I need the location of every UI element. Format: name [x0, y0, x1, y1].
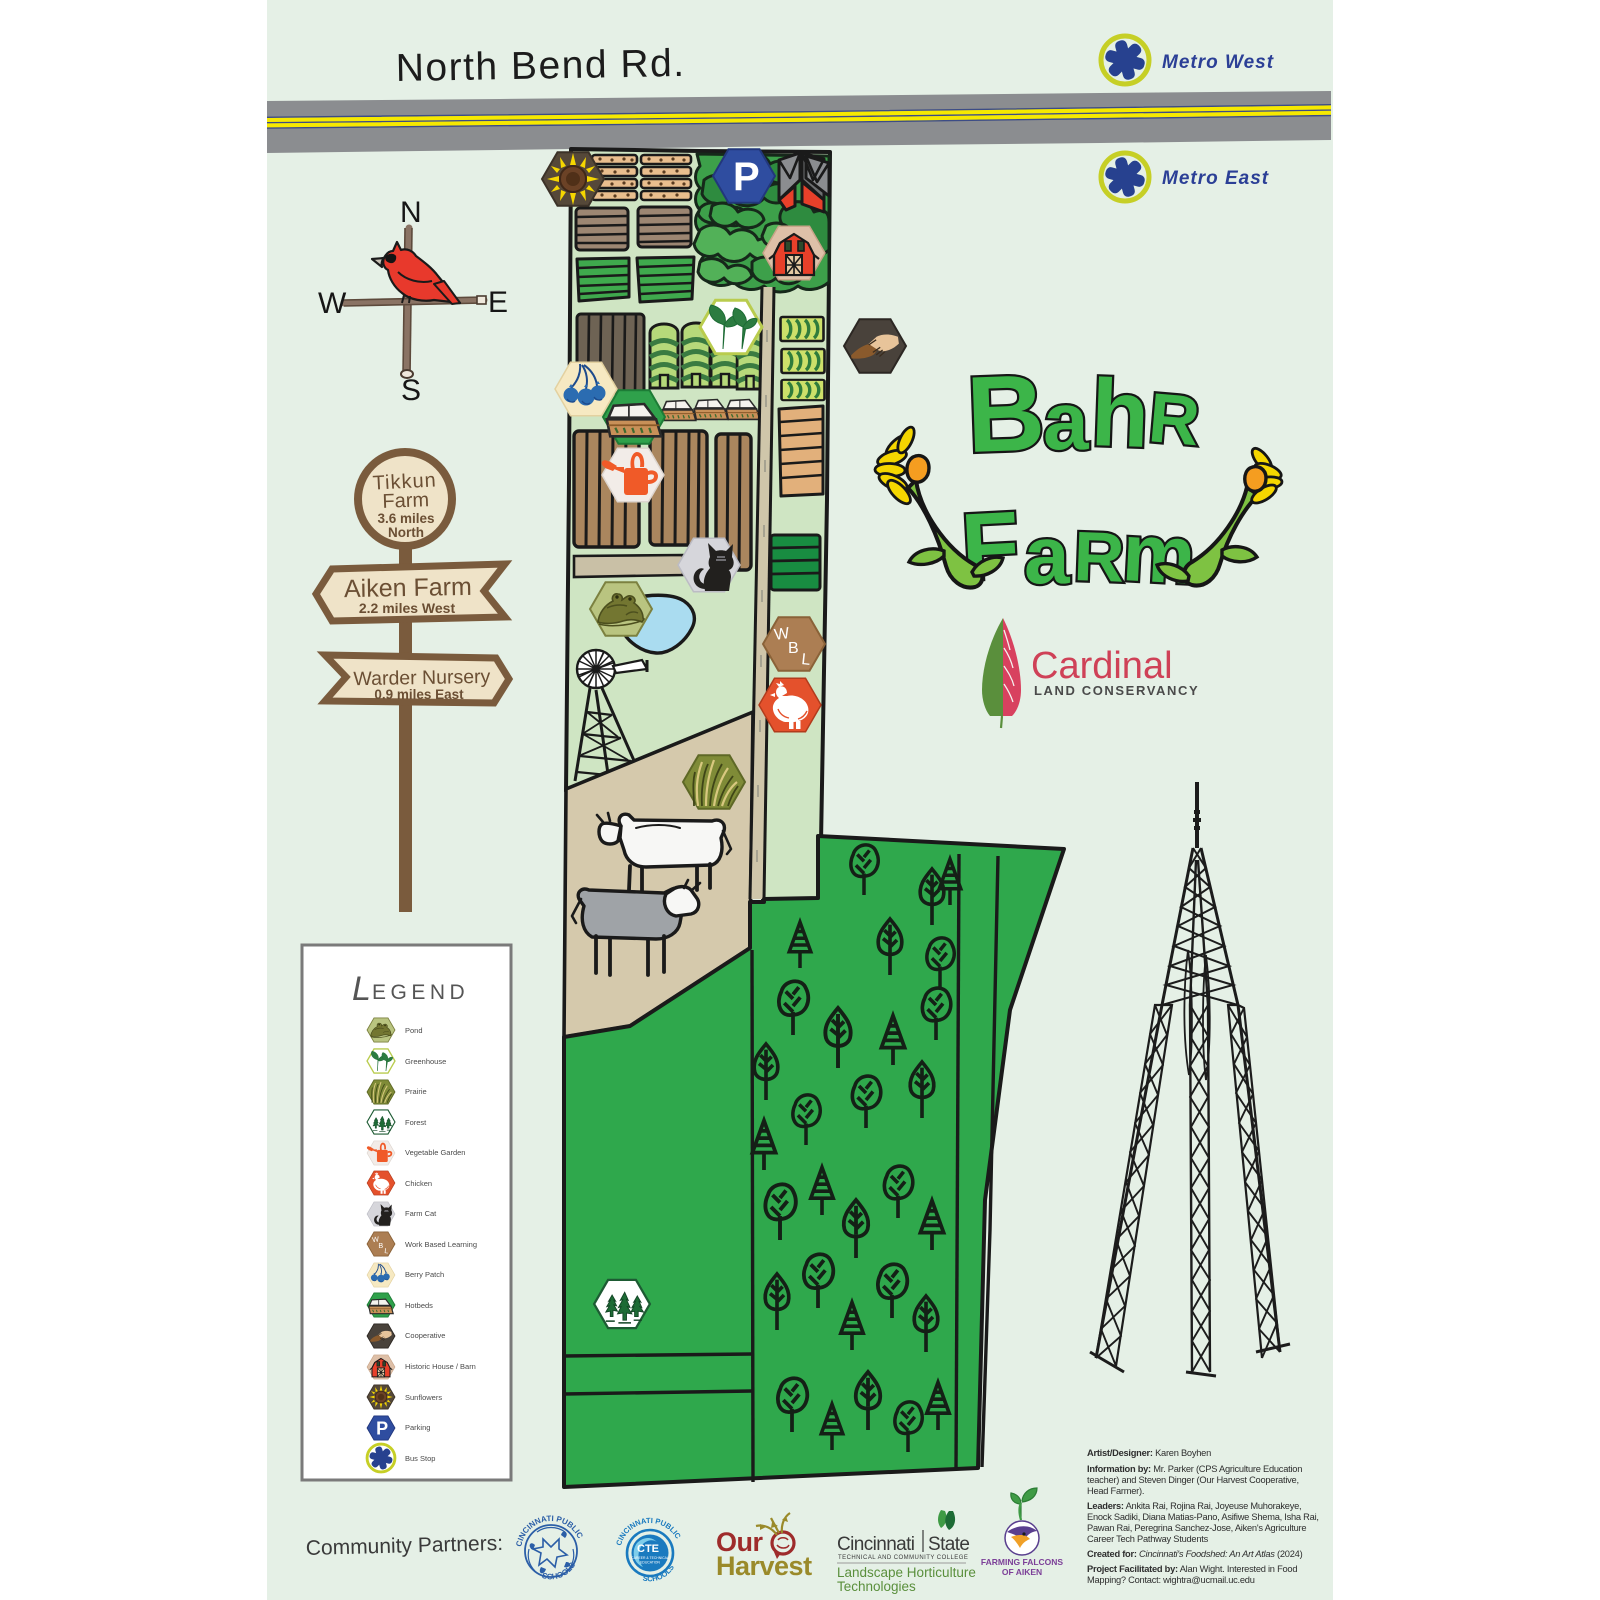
svg-text:EDUCATION: EDUCATION [640, 1561, 660, 1565]
svg-text:Chicken: Chicken [405, 1179, 432, 1188]
svg-text:FARMING FALCONS: FARMING FALCONS [981, 1557, 1063, 1567]
svg-text:Cooperative: Cooperative [405, 1331, 445, 1340]
svg-text:Hotbeds: Hotbeds [405, 1301, 433, 1310]
svg-text:CAREER & TECHNICAL: CAREER & TECHNICAL [631, 1556, 669, 1560]
svg-text:Metro West: Metro West [1162, 52, 1274, 73]
svg-text:North: North [388, 525, 424, 540]
svg-text:Cincinnati: Cincinnati [837, 1534, 914, 1555]
svg-text:Berry Patch: Berry Patch [405, 1270, 444, 1279]
svg-text:Forest: Forest [405, 1118, 427, 1127]
svg-text:Cardinal: Cardinal [1031, 645, 1173, 687]
svg-text:2.2 miles West: 2.2 miles West [359, 600, 456, 616]
svg-text:Greenhouse: Greenhouse [405, 1057, 446, 1066]
svg-text:Farm Cat: Farm Cat [405, 1209, 437, 1218]
svg-text:Information by: Mr. Parker (CP: Information by: Mr. Parker (CPS Agricult… [1087, 1464, 1302, 1474]
svg-text:0.9 miles East: 0.9 miles East [374, 687, 464, 702]
svg-text:teacher) and Steven Dinger (Ou: teacher) and Steven Dinger (Our Harvest … [1087, 1475, 1299, 1485]
svg-text:Prairie: Prairie [405, 1087, 427, 1096]
svg-text:EGEND: EGEND [372, 981, 469, 1004]
svg-text:E: E [488, 286, 508, 319]
svg-text:Leaders: Ankita Rai, Rojina Ra: Leaders: Ankita Rai, Rojina Rai, Joyeuse… [1087, 1501, 1301, 1511]
svg-text:L: L [352, 970, 371, 1008]
svg-text:LAND CONSERVANCY: LAND CONSERVANCY [1034, 683, 1199, 698]
svg-text:R: R [1072, 517, 1125, 597]
svg-text:Harvest: Harvest [716, 1551, 812, 1581]
svg-text:OF AIKEN: OF AIKEN [1002, 1567, 1042, 1577]
svg-text:B: B [965, 351, 1047, 475]
svg-text:R: R [1146, 378, 1203, 460]
svg-text:Metro East: Metro East [1162, 168, 1269, 189]
svg-text:Head Farmer).: Head Farmer). [1087, 1486, 1144, 1496]
svg-text:State: State [928, 1534, 969, 1555]
svg-text:N: N [400, 196, 422, 229]
svg-text:TECHNICAL AND COMMUNITY COLLEG: TECHNICAL AND COMMUNITY COLLEGE [838, 1555, 968, 1561]
svg-text:Landscape Horticulture: Landscape Horticulture [837, 1565, 976, 1580]
svg-text:m: m [1120, 507, 1198, 602]
svg-text:Vegetable Garden: Vegetable Garden [405, 1148, 465, 1157]
svg-text:a: a [1043, 376, 1090, 467]
svg-text:CTE: CTE [637, 1543, 659, 1555]
svg-text:a: a [1024, 510, 1071, 601]
svg-text:Work Based Learning: Work Based Learning [405, 1240, 477, 1249]
svg-text:S: S [401, 374, 421, 407]
svg-text:Sunflowers: Sunflowers [405, 1393, 442, 1402]
svg-text:Parking: Parking [405, 1423, 430, 1432]
svg-text:Pond: Pond [405, 1026, 423, 1035]
svg-text:W: W [318, 287, 347, 320]
svg-text:3.6 miles: 3.6 miles [377, 511, 434, 526]
svg-text:Bus Stop: Bus Stop [405, 1454, 435, 1463]
svg-text:Pawan Rai, Peregrina Sanchez-J: Pawan Rai, Peregrina Sanchez-Jose, Aiken… [1087, 1523, 1306, 1533]
svg-text:Farm: Farm [382, 489, 429, 513]
svg-text:Project Facilitated by: Alan W: Project Facilitated by: Alan Wight. Inte… [1087, 1564, 1297, 1574]
svg-text:Mapping? Contact: wightra@ucma: Mapping? Contact: wightra@ucmail.uc.edu [1087, 1575, 1255, 1585]
svg-text:Artist/Designer: Karen Boyhen: Artist/Designer: Karen Boyhen [1087, 1448, 1211, 1458]
svg-text:Career Tech Pathway Students: Career Tech Pathway Students [1087, 1534, 1209, 1544]
svg-text:Historic House / Barn: Historic House / Barn [405, 1362, 476, 1371]
svg-text:Technologies: Technologies [837, 1579, 916, 1594]
svg-text:h: h [1089, 360, 1151, 468]
svg-text:North Bend Rd.: North Bend Rd. [395, 42, 686, 90]
svg-text:Aiken Farm: Aiken Farm [344, 573, 472, 603]
svg-text:Enock Sadiki, Diana Matias-Pan: Enock Sadiki, Diana Matias-Pano, Asifiwe… [1087, 1512, 1319, 1522]
svg-text:Created for: Cincinnati's Food: Created for: Cincinnati's Foodshed: An A… [1087, 1549, 1303, 1559]
